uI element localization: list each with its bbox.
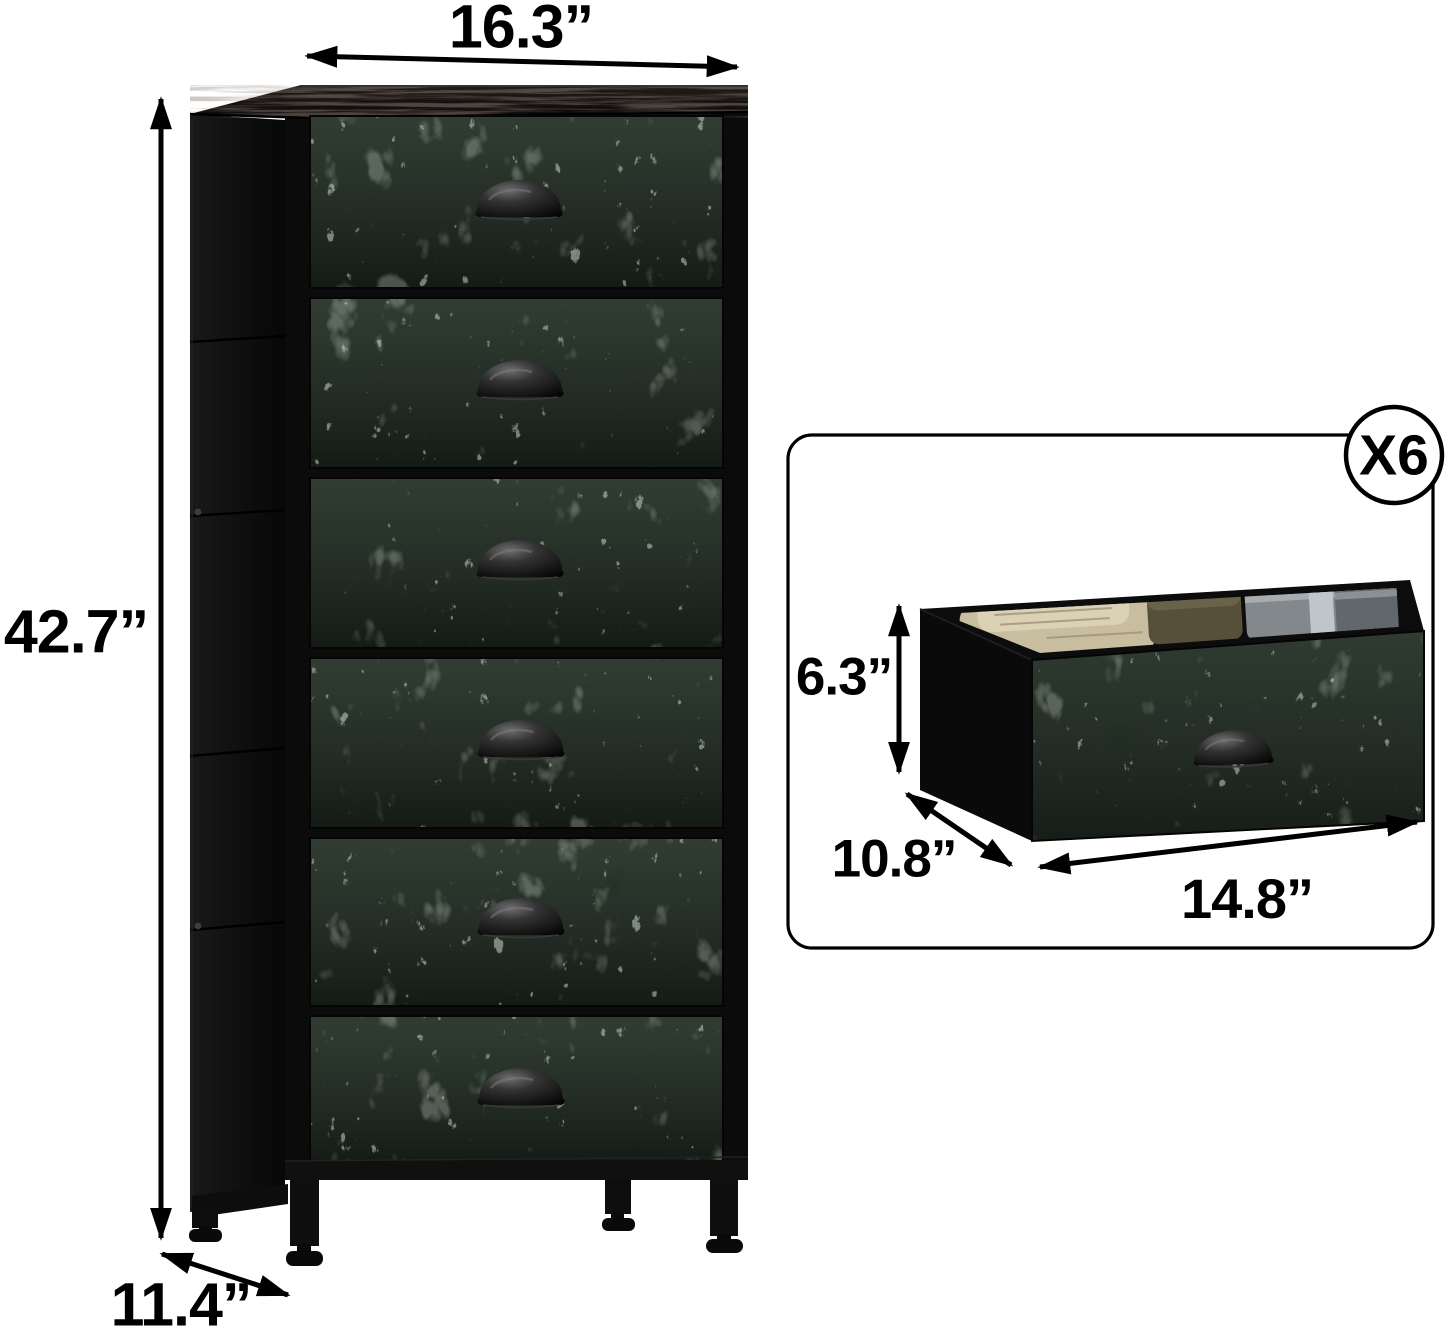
foot [189,1229,222,1242]
dresser [189,85,748,1266]
inset-depth-dimension-label: 10.8” [832,833,957,886]
foot [602,1218,635,1231]
inset-width-dimension-label: 14.8” [1181,871,1313,927]
x6-badge-label: X6 [1359,428,1429,485]
width-dimension-label: 16.3” [449,0,593,58]
drawer-3 [310,478,723,648]
dresser-side-panel [190,114,285,1212]
dresser-illustration [0,0,1445,1337]
inset-height-dimension-label: 6.3” [796,651,892,704]
height-dimension-label: 42.7” [4,602,148,663]
inset-drawer [920,571,1440,855]
dresser-top [190,85,748,118]
side-screw-dot [195,509,202,516]
drawer-1 [310,116,723,288]
depth-dimension-label: 11.4” [111,1275,252,1336]
drawer-2 [310,298,723,468]
drawer-4 [310,658,723,828]
foot [286,1251,323,1266]
product-dimension-diagram: 16.3” 42.7” 11.4” X6 6.3” 10.8” 14.8” [0,0,1445,1337]
foot [706,1239,743,1253]
side-screw-dot [195,923,202,930]
drawer-6 [310,1016,723,1163]
drawer-5 [310,838,723,1006]
